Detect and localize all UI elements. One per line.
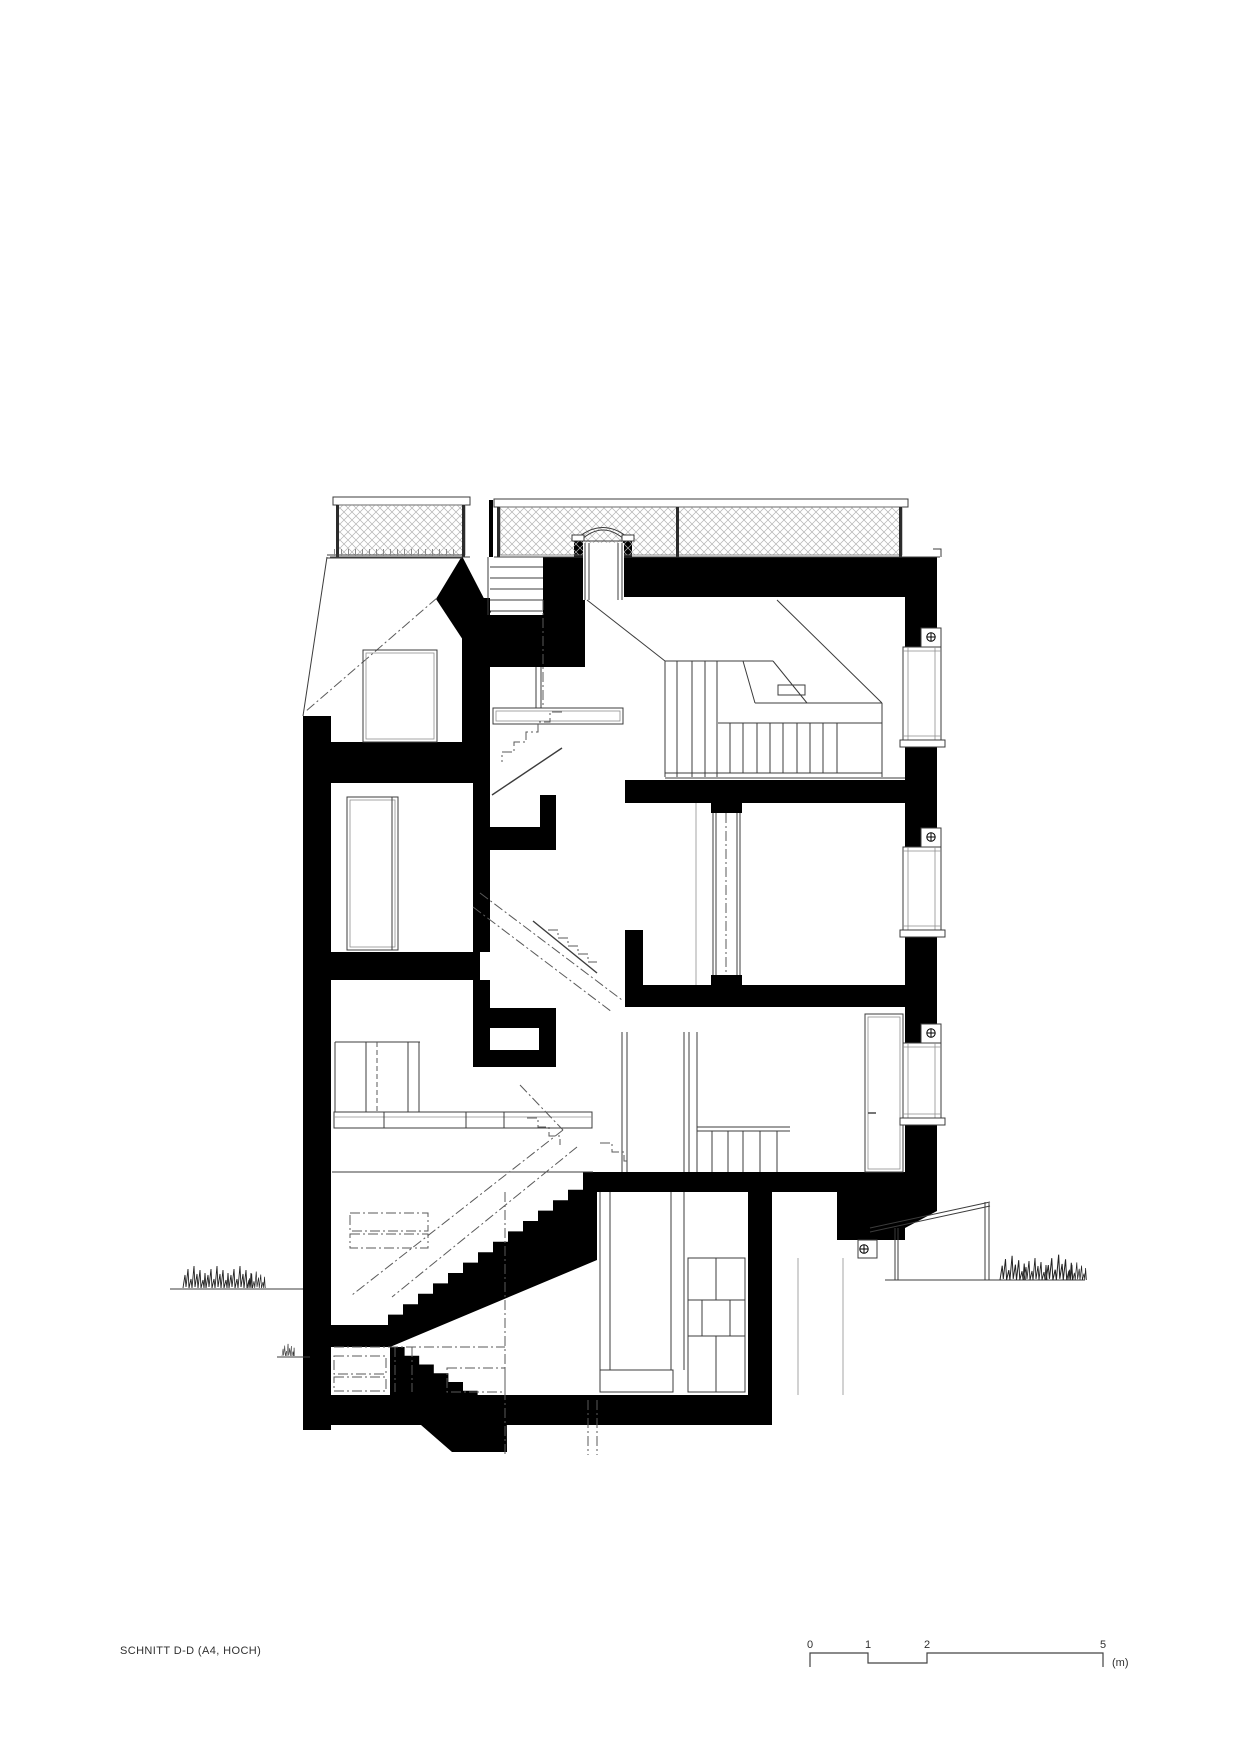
- window-sill: [900, 1118, 945, 1125]
- railing-mesh-panel: [338, 505, 465, 555]
- mansard-slope-line: [303, 557, 327, 716]
- scale-tick-5: 5: [1100, 1639, 1106, 1651]
- roof-slab: [622, 557, 937, 597]
- scale-tick-0: 0: [807, 1639, 813, 1651]
- roof-slope-hidden-line: [305, 598, 437, 712]
- terrain-right: [885, 1255, 1086, 1280]
- scale-bar-line: [810, 1653, 1103, 1667]
- scale-unit: (m): [1112, 1657, 1129, 1669]
- drawing-title: SCHNITT D-D (A4, HOCH): [120, 1645, 261, 1657]
- floor-slab-left-attic: [331, 742, 490, 783]
- roof-deck: [303, 553, 462, 717]
- sideboard: [334, 1112, 592, 1128]
- window-sill: [900, 740, 945, 747]
- scale-tick-2: 2: [924, 1639, 930, 1651]
- grass-left: [183, 1266, 295, 1356]
- window-handle-icon: [927, 833, 935, 841]
- low-cabinet: [600, 1370, 673, 1392]
- handrail: [533, 921, 597, 973]
- grass-right: [1000, 1255, 1086, 1280]
- stair-balustrade: [730, 723, 837, 773]
- floor-slab-ground: [595, 1172, 937, 1192]
- building-section-drawing: SCHNITT D-D (A4, HOCH) 0 1 2 5 (m): [0, 0, 1239, 1754]
- attic-right-room: [587, 600, 905, 778]
- scale-tick-1: 1: [865, 1639, 871, 1651]
- parapet-edge: [933, 549, 941, 557]
- window-handle-icon: [927, 1029, 935, 1037]
- railing-mesh-panel: [500, 507, 902, 555]
- glass-door: [865, 1014, 903, 1172]
- upper-floor-left-room: [347, 797, 398, 950]
- roof-access-stair: [488, 557, 543, 615]
- floor-slab-right-attic: [625, 780, 937, 803]
- kitchen-room: [600, 1014, 903, 1172]
- attic-wardrobe: [363, 650, 437, 742]
- upper-floor-right-room: [696, 803, 740, 985]
- roof-railing-right: [494, 499, 940, 557]
- floor-slab-right-mid: [625, 985, 937, 1007]
- roof-railing-left: [330, 497, 470, 557]
- basement-floor-slab: [331, 1395, 772, 1425]
- railing-cap: [494, 499, 908, 507]
- basement-right-room: [600, 1192, 745, 1392]
- stair-flight-main: [331, 1172, 597, 1347]
- stairwell-ceiling-slope: [777, 600, 882, 703]
- scale-bar: 0 1 2 5 (m): [807, 1639, 1129, 1669]
- storage-boxes: [688, 1258, 745, 1392]
- window-handle-icon: [927, 633, 935, 641]
- tall-cupboard: [347, 797, 398, 950]
- terrain-left: [170, 1266, 310, 1357]
- window-sill: [900, 930, 945, 937]
- annex-front-wall: [985, 1202, 989, 1280]
- cut-walls-poche: [303, 500, 937, 1452]
- kitchen-counter: [697, 1127, 790, 1172]
- kitchen-tall-units: [622, 1032, 697, 1172]
- drawing-sheet: SCHNITT D-D (A4, HOCH) 0 1 2 5 (m): [0, 0, 1239, 1754]
- window-handle-icon: [860, 1245, 868, 1253]
- left-exterior-wall: [303, 716, 331, 1430]
- floor-slab-left-mid: [331, 952, 480, 980]
- railing-cap: [333, 497, 470, 505]
